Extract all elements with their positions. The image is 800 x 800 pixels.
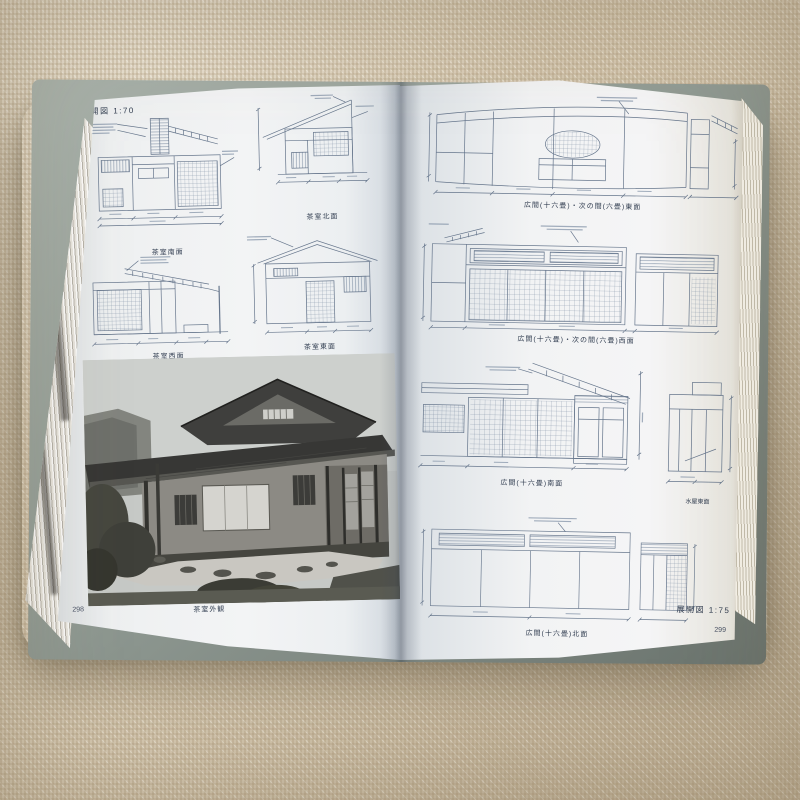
figure-hall-south: 広間(十六畳)南面 [412, 359, 654, 492]
figure-mizuya: 水屋東面 [659, 380, 737, 509]
elevation-drawing [419, 221, 736, 337]
figure-caption: 茶室東面 [247, 340, 392, 354]
figure-hall-north: 広間(十六畳)北面 [417, 515, 699, 642]
page-number-right: 299 [714, 627, 726, 634]
elevation-drawing [425, 87, 742, 203]
tea-house-photo [83, 353, 401, 606]
figure-tea-room-east: 茶室東面 [245, 231, 393, 354]
elevation-drawing [87, 111, 245, 248]
tea-house-photo-figure: 茶室外観 [83, 353, 401, 618]
elevation-drawing [417, 515, 699, 630]
elevation-drawing [254, 91, 389, 212]
right-page: 広間(十六畳)・次の間(六畳)東面 [400, 78, 745, 660]
figure-caption: 茶室北面 [256, 210, 388, 224]
elevation-drawing [412, 359, 654, 480]
figure-tea-room-south: 茶室南面 [87, 111, 245, 260]
figure-tea-room-north: 茶室北面 [254, 91, 389, 224]
figure-caption: 水屋東面 [659, 497, 735, 509]
figure-tea-room-west: 茶室西面 [86, 253, 248, 365]
figure-hall-west: 広間(十六畳)・次の間(六畳)西面 [418, 221, 735, 349]
page-number-left: 298 [72, 606, 84, 613]
elevation-drawing [660, 380, 738, 497]
scale-label-right: 展開図 1:75 [676, 604, 730, 616]
figure-hall-east: 広間(十六畳)・次の間(六畳)東面 [425, 87, 742, 215]
elevation-drawing [245, 231, 392, 342]
elevation-drawing [86, 253, 248, 353]
left-page: 展開図 1:70 [55, 85, 400, 660]
